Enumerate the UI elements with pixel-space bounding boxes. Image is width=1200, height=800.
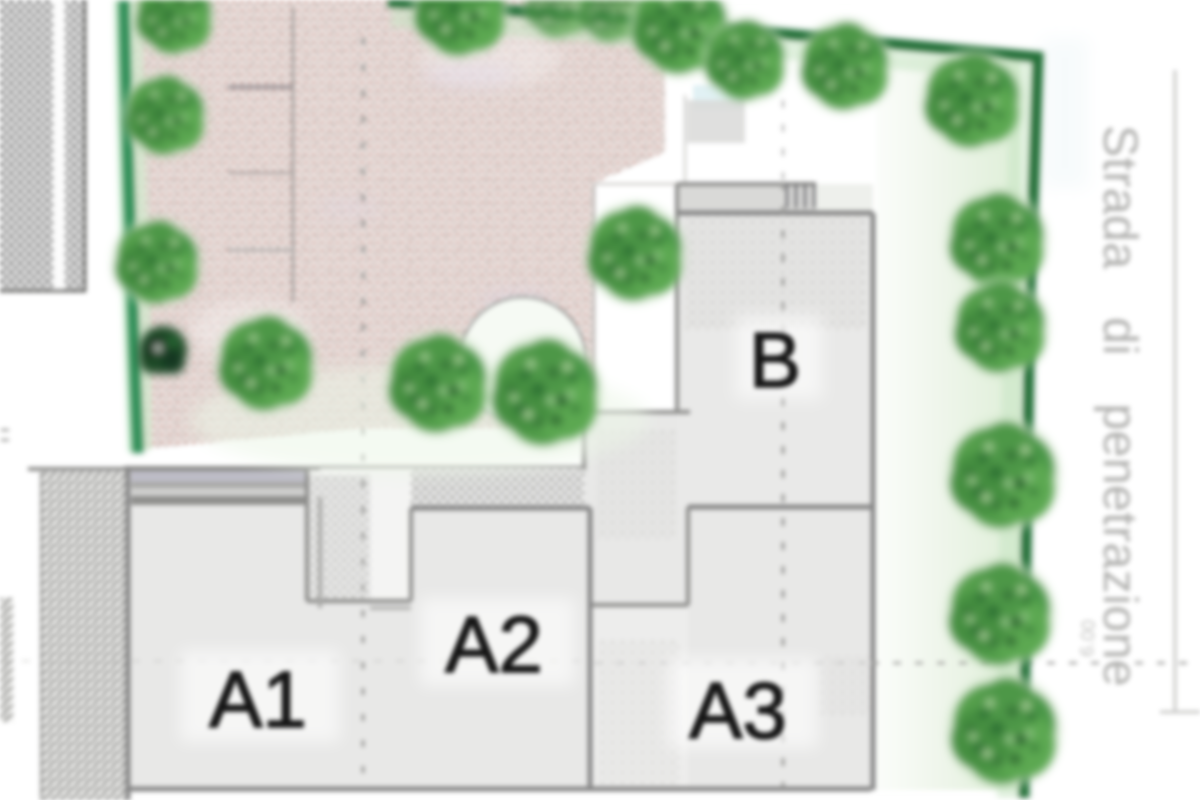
svg-text:A1: A1 bbox=[209, 655, 307, 744]
svg-text:B: B bbox=[749, 316, 801, 404]
svg-text:Strada di penetrazione: Strada di penetrazione bbox=[1093, 125, 1146, 687]
svg-text:A3: A3 bbox=[689, 666, 787, 755]
svg-text:A2: A2 bbox=[445, 600, 543, 689]
svg-text:6.00: 6.00 bbox=[1077, 619, 1100, 657]
